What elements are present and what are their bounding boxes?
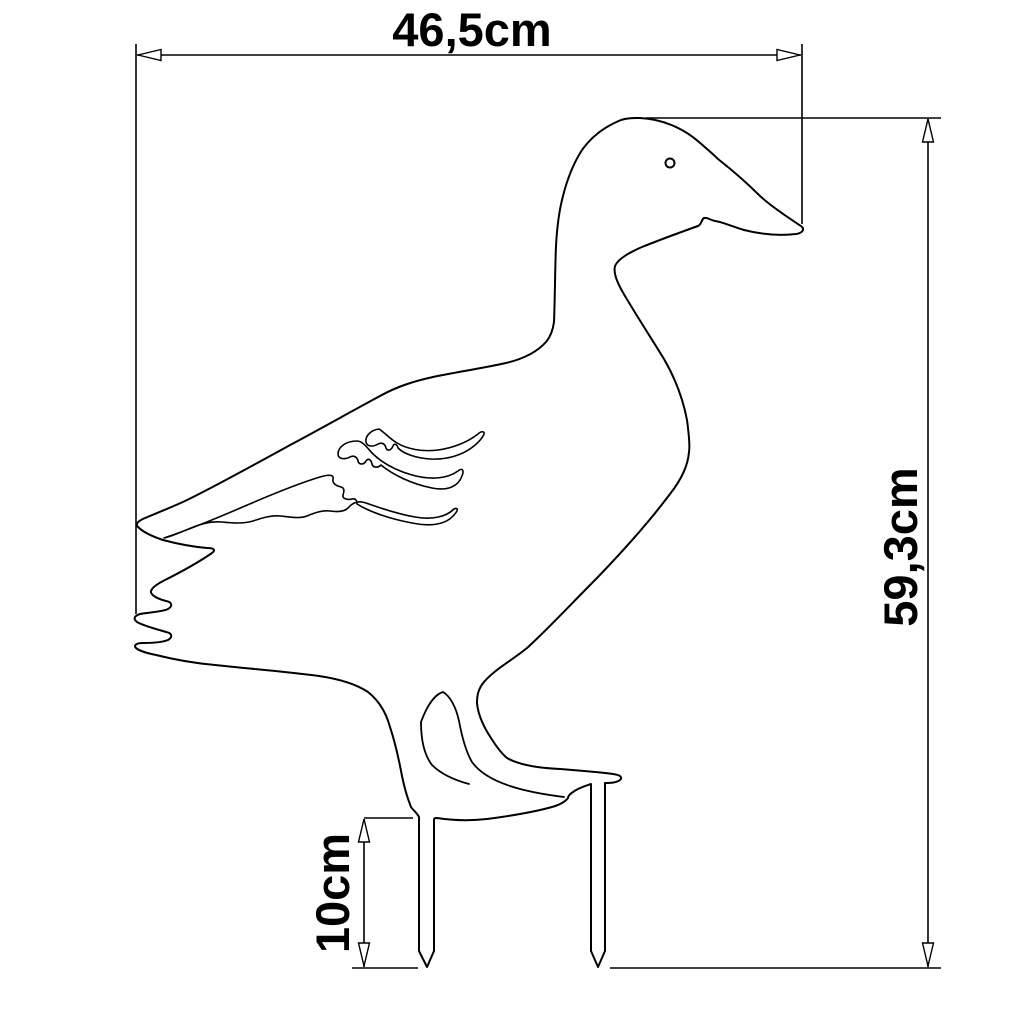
stake-arrowhead-up-icon <box>359 819 370 842</box>
arrowhead-right-icon <box>777 50 800 61</box>
duck-dimension-drawing: 46,5cm 59,3cm 10cm <box>0 0 1024 1024</box>
stake-dimension-label: 10cm <box>306 833 359 953</box>
arrowhead-down-icon <box>923 943 934 966</box>
arrowhead-up-icon <box>923 119 934 142</box>
stake-arrowhead-down-icon <box>359 943 370 966</box>
arrowhead-left-icon <box>138 50 161 61</box>
duck-outline <box>135 118 803 967</box>
height-dimension-label: 59,3cm <box>874 467 927 626</box>
duck-silhouette <box>135 118 803 967</box>
width-dimension-label: 46,5cm <box>392 3 551 56</box>
technical-drawing-canvas: 46,5cm 59,3cm 10cm <box>0 0 1024 1024</box>
duck-eye <box>666 159 675 168</box>
